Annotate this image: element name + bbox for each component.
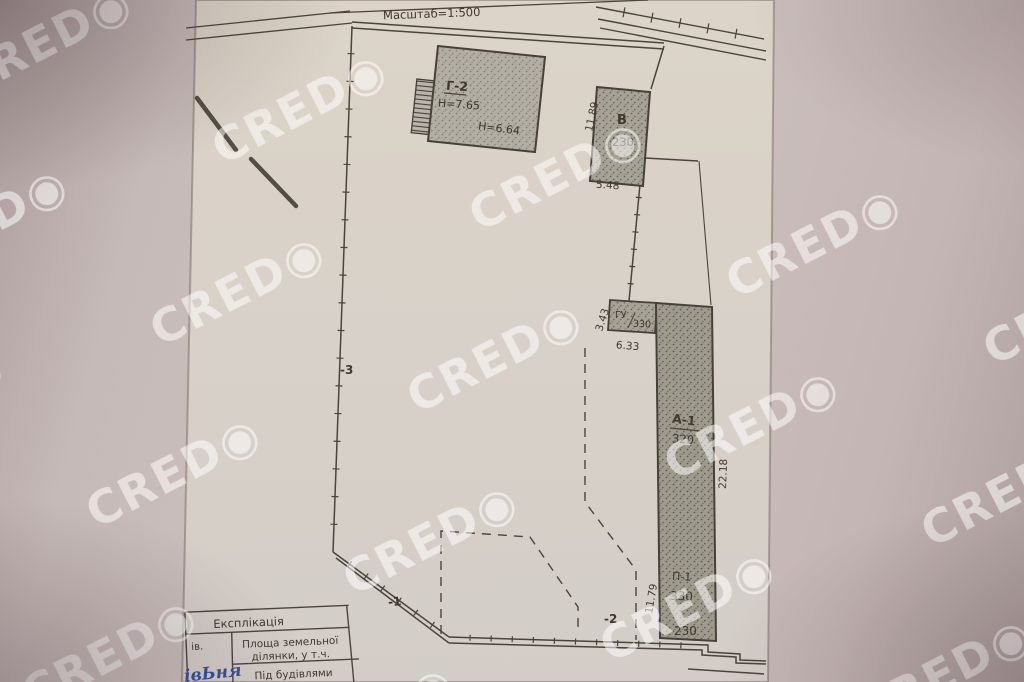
- tick-mark: [631, 249, 637, 250]
- building-a1-value: 320: [672, 431, 695, 447]
- tick-mark: [629, 266, 635, 267]
- point-label-2: -2: [604, 612, 617, 626]
- legend-col1-fragment: ів.: [191, 640, 203, 652]
- building-v: В 230 11.89 5.48: [583, 87, 650, 192]
- building-g2-label: Г-2: [446, 78, 469, 94]
- building-a1-dim-right: 22.18: [717, 459, 730, 489]
- tick-mark: [636, 197, 642, 198]
- point-label-3: -3: [340, 363, 353, 377]
- tick-mark: [628, 283, 634, 284]
- building-p1-value2: 230: [674, 624, 697, 638]
- building-a1-label: А-1: [671, 411, 696, 429]
- gu-box-value: 330: [633, 319, 652, 331]
- legend-title: Експлікація: [213, 614, 284, 631]
- tick-mark: [633, 232, 639, 233]
- building-v-label: В: [617, 113, 627, 128]
- tick-mark: [634, 214, 640, 215]
- gu-box-dim-bottom: 6.33: [615, 339, 639, 353]
- point-label-1: -1: [387, 594, 402, 609]
- building-p1-label: П-1: [672, 570, 692, 584]
- building-p1-value: 330: [670, 589, 693, 604]
- building-v-value: 230: [612, 135, 634, 149]
- building-v-dim-bottom: 5.48: [596, 179, 620, 193]
- scanned-site-plan-photo: Г-2 Н=7.65 Н=6.64 В 230 11.89 5.48 ГУ 33…: [0, 0, 1024, 682]
- site-plan-drawing: Г-2 Н=7.65 Н=6.64 В 230 11.89 5.48 ГУ 33…: [0, 0, 1024, 682]
- gu-box-label: ГУ: [615, 310, 627, 321]
